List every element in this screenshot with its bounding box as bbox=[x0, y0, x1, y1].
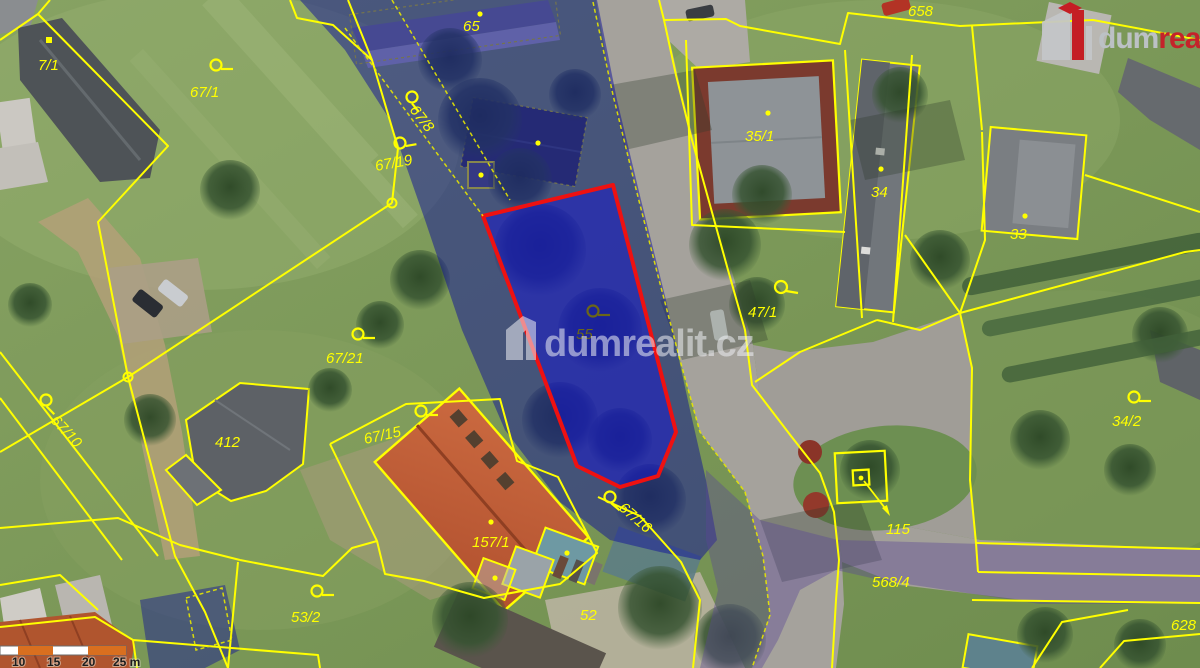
logo-text-realit: realit bbox=[1158, 22, 1200, 55]
parcel-label: 47/1 bbox=[748, 304, 777, 321]
parcel-label: 115 bbox=[886, 521, 911, 538]
parcel-label: 34/2 bbox=[1112, 413, 1142, 430]
aerial-map: 7/1 67/1 65 67/8 67/19 658 35/1 34 33 47… bbox=[0, 0, 1200, 668]
parcel-label: 7/1 bbox=[38, 57, 59, 74]
watermark: dumrealit.cz bbox=[506, 316, 754, 365]
parcel-label: 67/21 bbox=[326, 350, 364, 367]
parcel-label: 33 bbox=[1010, 226, 1027, 243]
parcel-label: 628 bbox=[1171, 617, 1197, 634]
watermark-text: dumrealit.cz bbox=[544, 323, 754, 365]
logo-text-dum: dum bbox=[1098, 22, 1158, 55]
parcel-label: 35/1 bbox=[745, 128, 774, 145]
parcel-label: 34 bbox=[871, 184, 888, 201]
scale-label-25m: 25 m bbox=[113, 655, 140, 668]
blue-zone-patch bbox=[140, 585, 240, 668]
parcel-label: 67/1 bbox=[190, 84, 219, 101]
parcel-label: 157/1 bbox=[472, 534, 510, 551]
scale-label-20: 20 bbox=[82, 655, 96, 668]
parcel-label: 568/4 bbox=[872, 574, 910, 591]
parcel-label: 52 bbox=[580, 607, 597, 624]
parcel-label: 658 bbox=[908, 3, 934, 20]
svg-text:dumrealit.cz: dumrealit.cz bbox=[1098, 22, 1200, 55]
parcel-label: 412 bbox=[215, 434, 241, 451]
parcel-label: 53/2 bbox=[291, 609, 321, 626]
parcel-label: 65 bbox=[463, 18, 480, 35]
building-33 bbox=[982, 127, 1087, 239]
scale-label-10: 10 bbox=[12, 655, 26, 668]
marker-square-7-1 bbox=[46, 37, 52, 43]
scale-label-15: 15 bbox=[47, 655, 61, 668]
cadastral-map-canvas[interactable]: 7/1 67/1 65 67/8 67/19 658 35/1 34 33 47… bbox=[0, 0, 1200, 668]
